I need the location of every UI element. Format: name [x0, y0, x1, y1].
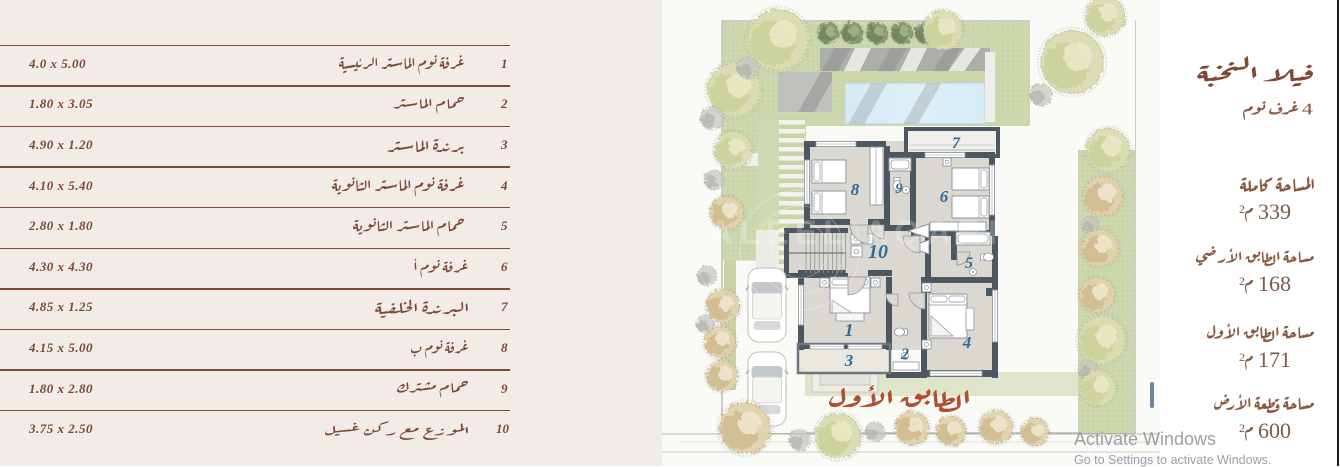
svg-text:1: 1	[845, 320, 854, 340]
svg-text:2: 2	[900, 346, 909, 363]
svg-text:8: 8	[851, 180, 860, 199]
svg-text:9: 9	[895, 181, 903, 197]
svg-text:6: 6	[940, 187, 949, 206]
svg-text:3: 3	[844, 351, 854, 370]
svg-text:7: 7	[952, 135, 961, 152]
svg-text:4: 4	[962, 333, 972, 352]
svg-text:5: 5	[965, 255, 973, 272]
svg-text:DALEEL AQARI: DALEEL AQARI	[678, 214, 1003, 252]
